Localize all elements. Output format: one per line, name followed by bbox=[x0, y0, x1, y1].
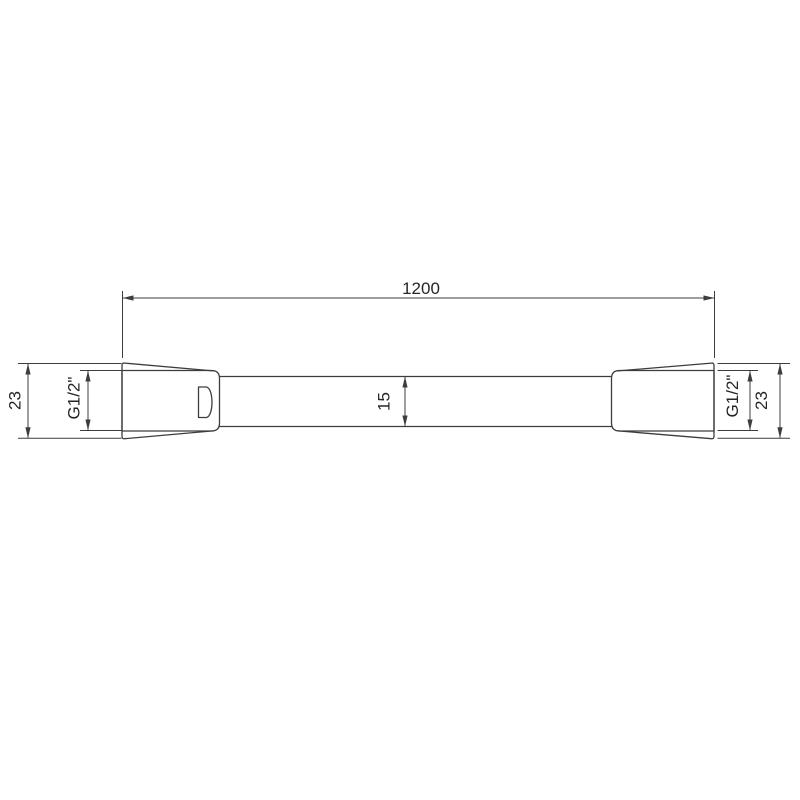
arrow-right-23-up bbox=[777, 364, 782, 375]
arrow-left-thread-up bbox=[85, 371, 90, 382]
label-overall-length: 1200 bbox=[402, 279, 440, 298]
arrow-hose-diameter-up bbox=[402, 377, 407, 388]
right-fitting-cone-outline bbox=[618, 363, 714, 439]
technical-drawing-canvas: 1200 23 G1/2" 15 G1/2" 23 bbox=[0, 0, 800, 800]
left-fitting-nipple-detail bbox=[199, 387, 212, 418]
arrow-length-right bbox=[704, 295, 715, 300]
label-right-thread-size: G1/2" bbox=[723, 375, 742, 418]
arrow-right-23-down bbox=[777, 427, 782, 438]
label-left-thread-size: G1/2" bbox=[65, 377, 84, 420]
arrow-length-left bbox=[123, 295, 134, 300]
left-fitting-body bbox=[122, 371, 220, 432]
arrow-right-thread-down bbox=[747, 420, 752, 431]
arrow-hose-diameter-down bbox=[402, 416, 407, 427]
left-fitting-cone-outline bbox=[122, 363, 213, 439]
right-fitting-body bbox=[612, 371, 715, 432]
arrow-left-23-down bbox=[25, 427, 30, 438]
label-left-nut-height: 23 bbox=[6, 391, 25, 410]
arrow-left-23-up bbox=[25, 364, 30, 375]
arrow-left-thread-down bbox=[85, 420, 90, 431]
label-hose-diameter: 15 bbox=[375, 392, 394, 411]
arrow-right-thread-up bbox=[747, 371, 752, 382]
shower-hose-dimension-drawing: 1200 23 G1/2" 15 G1/2" 23 bbox=[0, 0, 800, 800]
part-outlines bbox=[122, 363, 714, 439]
label-right-nut-height: 23 bbox=[752, 391, 771, 410]
dimension-labels: 1200 23 G1/2" 15 G1/2" 23 bbox=[6, 279, 772, 419]
